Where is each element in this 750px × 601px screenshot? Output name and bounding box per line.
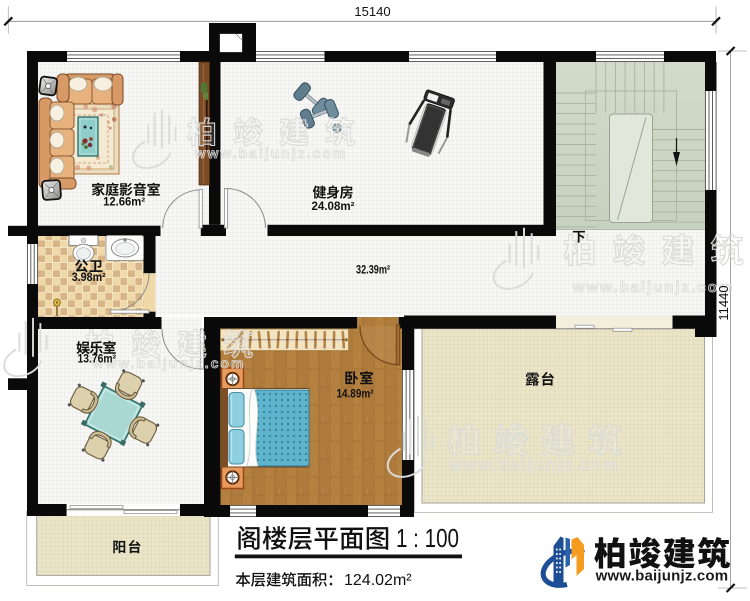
svg-text:12.66m²: 12.66m² bbox=[103, 196, 145, 208]
svg-text:www.baijunjz.com: www.baijunjz.com bbox=[194, 145, 348, 161]
svg-text:24.08m²: 24.08m² bbox=[312, 201, 355, 213]
svg-text:15140: 15140 bbox=[354, 4, 390, 19]
svg-text:1 : 100: 1 : 100 bbox=[396, 523, 459, 553]
svg-text:www.baijunjz.com: www.baijunjz.com bbox=[572, 279, 734, 296]
svg-text:11440: 11440 bbox=[716, 285, 731, 320]
svg-text:3.98m²: 3.98m² bbox=[72, 272, 106, 284]
svg-text:www.baijunjz.com: www.baijunjz.com bbox=[448, 457, 619, 474]
svg-text:124.02m²: 124.02m² bbox=[344, 572, 412, 589]
svg-text:13.76m²: 13.76m² bbox=[78, 354, 117, 366]
svg-text:www.baijunjz.com: www.baijunjz.com bbox=[595, 568, 729, 585]
svg-text:32.39m²: 32.39m² bbox=[356, 262, 390, 276]
svg-text:14.89m²: 14.89m² bbox=[337, 389, 374, 401]
